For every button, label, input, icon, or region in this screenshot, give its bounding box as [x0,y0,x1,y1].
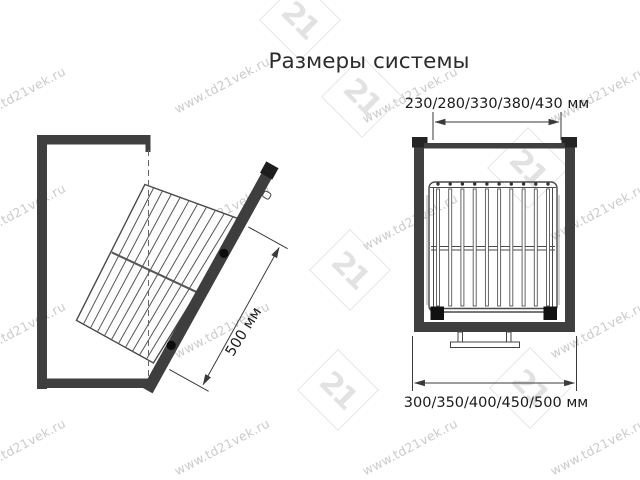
page-title: Размеры системы [268,49,469,74]
front-view-inner-width-label: 230/280/330/380/430 мм [405,96,589,112]
pedestal-base-plate [451,342,520,348]
dimension-inner-width [433,112,561,140]
cabinet-left-wall [414,140,424,332]
pedestal-leg [458,332,463,342]
front-view-outer-width-label: 300/350/400/450/500 мм [404,395,588,411]
cabinet-bottom-panel [37,379,150,389]
pedestal-foot [451,332,520,348]
extension-line [169,369,208,391]
pedestal-leg [507,332,512,342]
basket-mount-block [544,307,558,321]
basket-wires [437,189,550,306]
extension-line [248,227,287,249]
wire-end-dots [436,182,549,185]
cabinet-bottom-panel [414,322,575,332]
basket-mount-block [431,307,445,321]
cabinet-left-wall [37,135,47,389]
cabinet-top-panel-end [146,135,151,152]
cabinet-right-wall [565,140,575,332]
cabinet-top-panel [37,135,150,145]
cabinet-top-rail [424,143,565,149]
side-view-diagram [37,135,320,417]
wire-basket-front [429,182,557,320]
diagram-page: { "title": "Размеры системы", "watermark… [0,0,640,480]
front-view-diagram [412,112,577,391]
